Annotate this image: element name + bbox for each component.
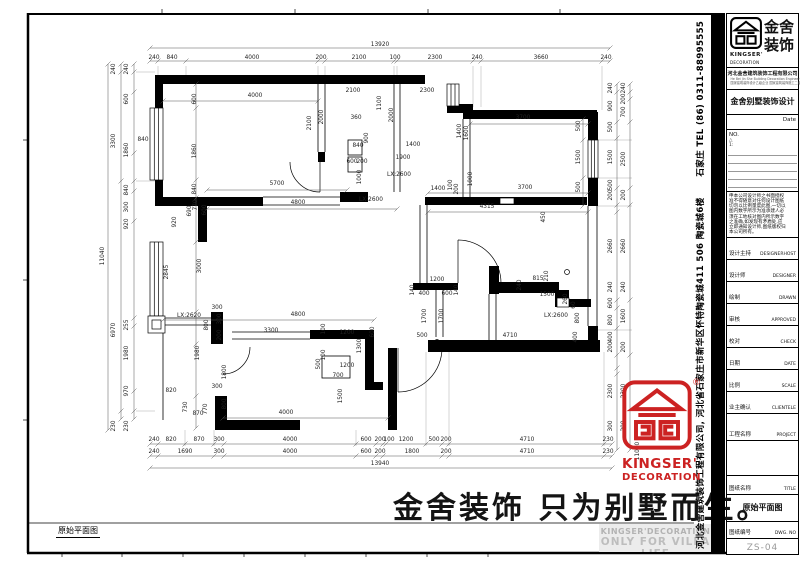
dim-label: 2660 <box>621 238 627 253</box>
logo-en-2: DECORATION <box>730 60 759 65</box>
side-company-tel: 石家庄 TEL (86) 0311-88995555 <box>696 21 706 177</box>
dim-label: 770 <box>193 199 199 210</box>
dim-label: 840 <box>192 183 198 194</box>
project-row: 工程名称 PROJECT <box>727 414 798 441</box>
blank-rule <box>728 164 797 172</box>
window-top-jog <box>447 84 459 106</box>
dim-label: 1500 <box>338 388 344 403</box>
dim-label: 815 <box>532 276 543 282</box>
dim-label: 2100 <box>352 55 367 61</box>
dim-label: 200 <box>217 329 223 340</box>
copyright-notice: 申本公司设计师之书面授权准不得随意对任何设计图纸切勿以比例量度此图,一切以图内数… <box>727 191 798 238</box>
dim-label: 200 <box>454 183 460 194</box>
dim-label: 1500 <box>608 149 614 164</box>
project-value-box <box>727 441 798 476</box>
dim-label: 2845 <box>164 264 170 279</box>
dim-label: LX:2600 <box>387 172 411 178</box>
dim-label: 3700 <box>518 185 533 191</box>
villa-design-banner: 金舍别墅装饰设计 <box>727 89 798 115</box>
dim-label: 450 <box>541 211 547 222</box>
logo-cn-1: 金舍 <box>764 20 794 35</box>
dim-label: 200 <box>621 341 627 352</box>
dim-label: 200 <box>608 189 614 200</box>
partition-walls <box>163 84 597 420</box>
field-label-cn: 审核 <box>729 315 740 323</box>
dim-label: 800 <box>222 398 228 409</box>
dim-label: 240 <box>148 437 159 443</box>
field-label-en: SCALE <box>782 384 796 389</box>
dim-label: LX:2620 <box>177 313 201 319</box>
field-row-4: 校对CHECK <box>727 326 798 348</box>
title-block: 金舍 装饰 KINGSER' DECORATION 河北金舍建筑装饰工程有限公司… <box>726 13 799 555</box>
dim-label: 230 <box>111 420 117 431</box>
dim-label: 2500 <box>621 151 627 166</box>
dim-label: 240 <box>621 82 627 93</box>
dim-label: 300 <box>211 384 222 390</box>
company-name: 河北金舍建筑装饰工程有限公司 <box>727 70 798 77</box>
dim-label: 3700 <box>516 115 531 121</box>
dim-label: 500 <box>428 437 439 443</box>
dim-label: 200 <box>374 449 385 455</box>
dim-label: 230 <box>602 437 613 443</box>
dim-label: 140 <box>454 284 460 295</box>
dim-label: 500 <box>608 179 614 190</box>
dim-label: 200 <box>608 341 614 352</box>
dim-label: 400 <box>608 331 614 342</box>
field-label-en: DRAWN <box>779 296 796 301</box>
dim-label: 820 <box>165 388 176 394</box>
dim-label: 900 <box>608 100 614 111</box>
dim-label: 4000 <box>248 93 263 99</box>
dim-label: 4800 <box>291 312 306 318</box>
bay-window-left-top <box>150 108 163 180</box>
dim-label: 820 <box>165 437 176 443</box>
field-row-3: 审核APPROVED <box>727 304 798 326</box>
kingser-logo-icon <box>622 380 692 450</box>
dim-label: 4710 <box>520 449 535 455</box>
dim-label: LX:2600 <box>544 313 568 319</box>
dim-label: 840 <box>166 55 177 61</box>
dim-label: 700 <box>332 373 343 379</box>
window-corridor <box>500 198 514 204</box>
field-label-cn: 校对 <box>729 337 740 345</box>
dim-label: 1500 <box>576 149 582 164</box>
field-row-5: 日期DATE <box>727 348 798 370</box>
dim-label: 770 <box>203 403 209 414</box>
dim-label: 400 <box>418 291 429 297</box>
dim-label: 1860 <box>124 142 130 157</box>
dim-label: 140 <box>410 284 416 295</box>
registered-mark-icon: ® <box>692 378 701 388</box>
dim-label: 1860 <box>192 143 198 158</box>
extension-lines <box>136 66 632 446</box>
dwgno-label-cn: 图纸编号 <box>729 528 751 536</box>
dim-label: 1200 <box>340 330 355 336</box>
dim-label: 300 <box>213 437 224 443</box>
dim-label: 1800 <box>405 449 420 455</box>
blank-rule <box>728 172 797 180</box>
dim-label: 1300 <box>357 338 363 353</box>
dim-label: 60 <box>571 301 577 309</box>
dim-label: 200 <box>440 449 451 455</box>
dim-label: 500 <box>576 120 582 131</box>
date-label: Date <box>727 115 798 130</box>
dim-label: 4710 <box>520 437 535 443</box>
field-label-cn: 比例 <box>729 381 740 389</box>
dim-label: 600 <box>360 449 371 455</box>
field-label-cn: 业主确认 <box>729 403 751 411</box>
dim-label: 13940 <box>371 461 390 467</box>
field-label-cn: 绘制 <box>729 293 740 301</box>
dim-label: 240 <box>124 63 130 74</box>
blank-rule <box>728 156 797 164</box>
window-right <box>588 140 598 178</box>
dim-label: 600 <box>192 93 198 104</box>
field-row-0: 设计主持DESIGNERHOST <box>727 238 798 260</box>
dim-label: 240 <box>148 449 159 455</box>
dim-label: 600 <box>441 291 452 297</box>
dim-label: 1400 <box>406 142 421 148</box>
dim-label: 1700 <box>422 308 428 323</box>
dim-label: 3660 <box>534 55 549 61</box>
dim-label: 600 <box>608 297 614 308</box>
dim-label: 600 <box>370 326 376 337</box>
dim-label: 1400 <box>431 186 446 192</box>
dim-label: 4710 <box>503 333 518 339</box>
sheet-name-label: 原始平面图 <box>56 525 100 538</box>
field-label-en: DATE <box>784 362 796 367</box>
kingser-logo-icon <box>730 17 762 49</box>
dim-label: 2000 <box>389 107 395 122</box>
dim-label: 1800 <box>222 364 228 379</box>
stamp-text-1: KINGSER' <box>622 456 702 472</box>
drawing-number: ZS-04 <box>727 539 798 558</box>
dim-label: 730 <box>183 401 189 412</box>
window-left-small <box>148 316 165 333</box>
dim-label: 5700 <box>270 181 285 187</box>
dim-label: 300 <box>124 201 130 212</box>
company-stamp: ® KINGSER' DECORATION <box>622 380 702 483</box>
dim-label: 200 <box>315 55 326 61</box>
field-row-2: 绘制DRAWN <box>727 282 798 304</box>
company-name-en: He Bei Jin She Building Decoration Engin… <box>731 77 795 81</box>
dim-label: 240 <box>621 281 627 292</box>
dim-label: 2000 <box>319 109 325 124</box>
dim-label: 1700 <box>439 308 445 323</box>
dim-label: 1400 <box>457 123 463 138</box>
dimension-labels: 1392024084040002002100100230024036602402… <box>100 42 641 467</box>
dwgno-label-en: DWG. NO <box>775 531 796 536</box>
dim-label: 4000 <box>283 449 298 455</box>
dim-label: 1200 <box>399 437 414 443</box>
company-cert: 国家建筑装饰设计乙级企业 国家建筑装饰施工二级企业 <box>731 81 795 86</box>
project-label-cn: 工程名称 <box>729 430 751 438</box>
dim-label: 4315 <box>480 204 495 210</box>
dim-label: 230 <box>124 420 130 431</box>
blank-rule <box>728 180 797 188</box>
project-label-en: PROJECT <box>777 433 796 438</box>
no-label: NO. <box>727 130 798 138</box>
dim-label: 800 <box>204 319 210 330</box>
field-row-7: 业主确认CLIENTELE <box>727 392 798 414</box>
dim-label: 230 <box>602 449 613 455</box>
dim-label: 1200 <box>340 363 355 369</box>
logo-en-1: KINGSER' <box>730 52 763 58</box>
dim-label: 840 <box>124 184 130 195</box>
dim-label: 6970 <box>111 322 117 337</box>
dim-label: 3300 <box>111 133 117 148</box>
dim-label: 1980 <box>195 345 201 360</box>
dim-label: 200 <box>621 93 627 104</box>
dim-label: 4000 <box>279 410 294 416</box>
dim-label: 870 <box>193 437 204 443</box>
dim-label: 11040 <box>100 246 106 265</box>
dim-label: 840 <box>352 143 363 149</box>
entry-door <box>398 348 442 392</box>
dim-label: 240 <box>517 279 523 290</box>
drawing-sheet: 1392024084040002002100100230024036602402… <box>0 0 800 566</box>
dim-label: 240 <box>148 55 159 61</box>
dim-label: 2660 <box>608 238 614 253</box>
dim-label: 1500 <box>540 292 555 298</box>
field-label-en: DESIGNER <box>773 274 796 279</box>
dim-label: 300 <box>608 420 614 431</box>
dim-label: LX:2600 <box>359 197 383 203</box>
dim-label: 500 <box>608 121 614 132</box>
dim-label: 200 <box>356 159 367 165</box>
dim-label: 690 <box>187 205 193 216</box>
dim-label: 600 <box>202 204 208 215</box>
bay-window-left-bottom <box>150 242 163 316</box>
dim-label: 4000 <box>283 437 298 443</box>
dim-label: 240 <box>111 63 117 74</box>
dim-label: 1200 <box>430 277 445 283</box>
dim-label: 300 <box>213 449 224 455</box>
field-label-cn: 设计主持 <box>729 249 751 257</box>
windows <box>148 84 598 333</box>
dim-label: 500 <box>316 358 322 369</box>
dim-label: 100 <box>383 437 394 443</box>
dim-label: 1000 <box>357 169 363 184</box>
dim-label: 255 <box>124 319 130 330</box>
dim-label: 200 <box>621 189 627 200</box>
title-label-en: TITLE <box>784 487 796 492</box>
dim-label: 900 <box>364 132 370 143</box>
dim-label: 840 <box>137 137 148 143</box>
dim-label: 240 <box>608 281 614 292</box>
dim-label: 210 <box>544 270 550 281</box>
stamp-text-2: DECORATION <box>622 472 702 483</box>
dim-label: 2100 <box>307 115 313 130</box>
field-row-6: 比例SCALE <box>727 370 798 392</box>
dim-label: 1100 <box>377 95 383 110</box>
dim-label: 300 <box>211 305 222 311</box>
dim-label: 3300 <box>264 328 279 334</box>
dim-label: 360 <box>350 115 361 121</box>
dim-label: 700 <box>621 106 627 117</box>
dim-label: 260 <box>563 293 569 304</box>
dim-label: 800 <box>575 312 581 323</box>
dim-label: 100 <box>321 323 327 334</box>
dim-label: 4800 <box>291 200 306 206</box>
dim-label: 13920 <box>371 42 390 48</box>
field-label-en: CHECK <box>781 340 796 345</box>
dim-label: 2300 <box>420 88 435 94</box>
dim-label: 2300 <box>428 55 443 61</box>
dim-label: 300 <box>217 313 223 324</box>
field-row-1: 设计师DESIGNER <box>727 260 798 282</box>
dim-label: 500 <box>416 333 427 339</box>
field-label-cn: 设计师 <box>729 271 746 279</box>
dim-label: 600 <box>124 93 130 104</box>
logo-cn-2: 装饰 <box>764 38 794 53</box>
dim-label: 800 <box>608 314 614 325</box>
dim-label: 240 <box>600 55 611 61</box>
dim-label: 2100 <box>346 88 361 94</box>
dim-label: 3000 <box>197 258 203 273</box>
dim-label: 500 <box>576 181 582 192</box>
field-label-en: DESIGNERHOST <box>760 252 796 257</box>
dim-label: 100 <box>389 55 400 61</box>
dim-label: 1900 <box>396 155 411 161</box>
blank-rule <box>728 148 797 156</box>
dim-label: 600 <box>360 437 371 443</box>
plumbing-point <box>565 270 570 275</box>
dim-label: 920 <box>124 218 130 229</box>
dim-label: 970 <box>124 385 130 396</box>
bedroom-door <box>290 162 320 192</box>
dim-label: 1600 <box>464 125 470 140</box>
dim-label: 1980 <box>124 345 130 360</box>
dim-label: 240 <box>471 55 482 61</box>
field-label-en: CLIENTELE <box>772 406 796 411</box>
notice-line: 本公司所有。 <box>729 230 796 235</box>
dim-label: 1600 <box>621 308 627 323</box>
binding-bar <box>711 13 725 553</box>
dim-label: 2300 <box>608 383 614 398</box>
dim-label: 400 <box>573 331 579 342</box>
dim-label: 1690 <box>178 449 193 455</box>
signature-fields: 设计主持DESIGNERHOST设计师DESIGNER绘制DRAWN审核APPR… <box>727 238 798 414</box>
titleblock-logo: 金舍 装饰 KINGSER' DECORATION <box>727 14 798 68</box>
dim-label: 4000 <box>245 55 260 61</box>
dim-label: 1000 <box>468 171 474 186</box>
dim-label: 240 <box>608 82 614 93</box>
dim-label: 920 <box>172 216 178 227</box>
field-label-en: APPROVED <box>772 318 796 323</box>
dim-label: 200 <box>440 437 451 443</box>
field-label-cn: 日期 <box>729 359 740 367</box>
